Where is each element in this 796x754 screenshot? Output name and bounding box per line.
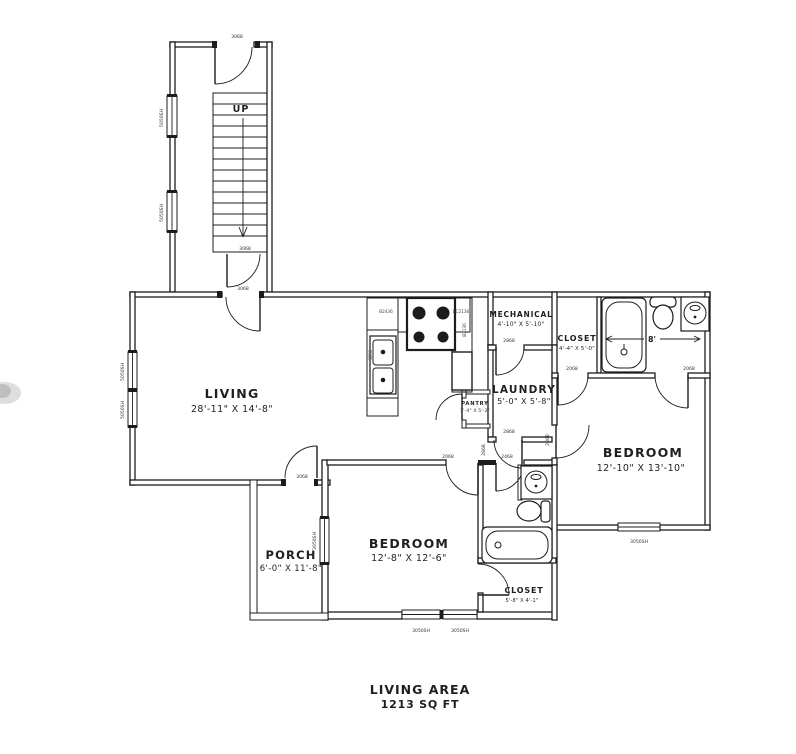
door-size-label: 2868 — [545, 434, 551, 446]
cabinet-label: SB36 — [368, 349, 373, 360]
door-size-label: 3068 — [231, 34, 243, 40]
bathtub-icon — [482, 527, 552, 563]
living-room-dims: 28'-11" X 14'-8" — [191, 404, 273, 415]
bedroom-right-name: BEDROOM — [603, 445, 683, 460]
refrigerator-icon — [452, 352, 472, 390]
bath-width-label: 8' — [648, 335, 656, 344]
closet-bottom-name: CLOSET — [505, 586, 544, 595]
plan-area: 1213 SQ FT — [381, 698, 460, 711]
lavatory-icon — [681, 297, 709, 331]
window-size-label: 3050SH — [451, 628, 469, 634]
bathtub-icon — [602, 298, 646, 372]
closet-top-dims: 4'-4" X 5'-0" — [559, 346, 595, 352]
window-size-label: 5050SH — [120, 363, 126, 381]
pantry-name: PANTRY — [461, 401, 489, 407]
porch-name: PORCH — [265, 548, 316, 562]
cabinet-label: BC2136 — [453, 309, 470, 314]
range-icon — [407, 298, 455, 350]
closet-bottom-dims: 5'-8" X 4'-1" — [506, 598, 539, 604]
floor-plan-drawing: UP B2436 BC2136 SB36 B2136 — [0, 0, 796, 754]
kitchen-fixtures: B2436 BC2136 SB36 B2136 — [367, 298, 472, 416]
window-size-label: 3050SH — [312, 532, 318, 550]
pantry-dims: 1'-4" X 5'-2" — [460, 408, 490, 414]
bedroom-right-dims: 12'-10" X 13'-10" — [597, 463, 686, 474]
bedroom-bottom-name: BEDROOM — [369, 536, 449, 551]
scan-artifact — [0, 382, 21, 404]
kitchen-sink-icon — [370, 336, 396, 394]
toilet-icon — [650, 297, 676, 329]
plan-title: LIVING AREA — [370, 682, 471, 697]
window-size-label: 3050SH — [412, 628, 430, 634]
door-size-label: 2868 — [503, 338, 515, 344]
cabinet-label: B2136 — [462, 323, 467, 337]
window-size-label: 5050SH — [120, 401, 126, 419]
laundry-dims: 5'-0" X 5'-8" — [497, 397, 551, 406]
vanity-sink-icon — [521, 466, 552, 499]
door-size-label: 3068 — [239, 246, 251, 252]
door-size-label: 2868 — [503, 429, 515, 435]
window-size-label: 3050SH — [630, 539, 648, 545]
stairs-up-label: UP — [233, 104, 250, 115]
door-size-label: 3068 — [237, 286, 249, 292]
staircase: UP — [213, 93, 267, 252]
door-size-label: 2068 — [442, 454, 454, 460]
door-size-label: 2068 — [683, 366, 695, 372]
door-size-label: 2868 — [481, 444, 487, 456]
window-size-label: 5050SH — [159, 109, 165, 127]
living-room-name: LIVING — [205, 386, 260, 401]
bathroom-mid-fixtures — [482, 466, 552, 563]
bathroom-top-fixtures: 8' — [602, 297, 709, 372]
closet-top-name: CLOSET — [558, 334, 597, 343]
window-size-label: 5050SH — [159, 204, 165, 222]
title-block: LIVING AREA 1213 SQ FT — [370, 682, 471, 711]
door-size-label: 3068 — [296, 474, 308, 480]
door-size-label: 2468 — [501, 454, 513, 460]
mechanical-name: MECHANICAL — [489, 310, 552, 319]
laundry-name: LAUNDRY — [492, 384, 556, 396]
mechanical-dims: 4'-10" X 5'-10" — [498, 321, 545, 328]
toilet-icon — [517, 501, 550, 522]
door-size-label: 2068 — [566, 366, 578, 372]
cabinet-label: B2436 — [379, 309, 393, 314]
bedroom-bottom-dims: 12'-8" X 12'-6" — [371, 553, 447, 564]
porch-dims: 6'-0" X 11'-8" — [260, 564, 323, 574]
floor-plan-page: UP B2436 BC2136 SB36 B2136 — [0, 0, 796, 754]
